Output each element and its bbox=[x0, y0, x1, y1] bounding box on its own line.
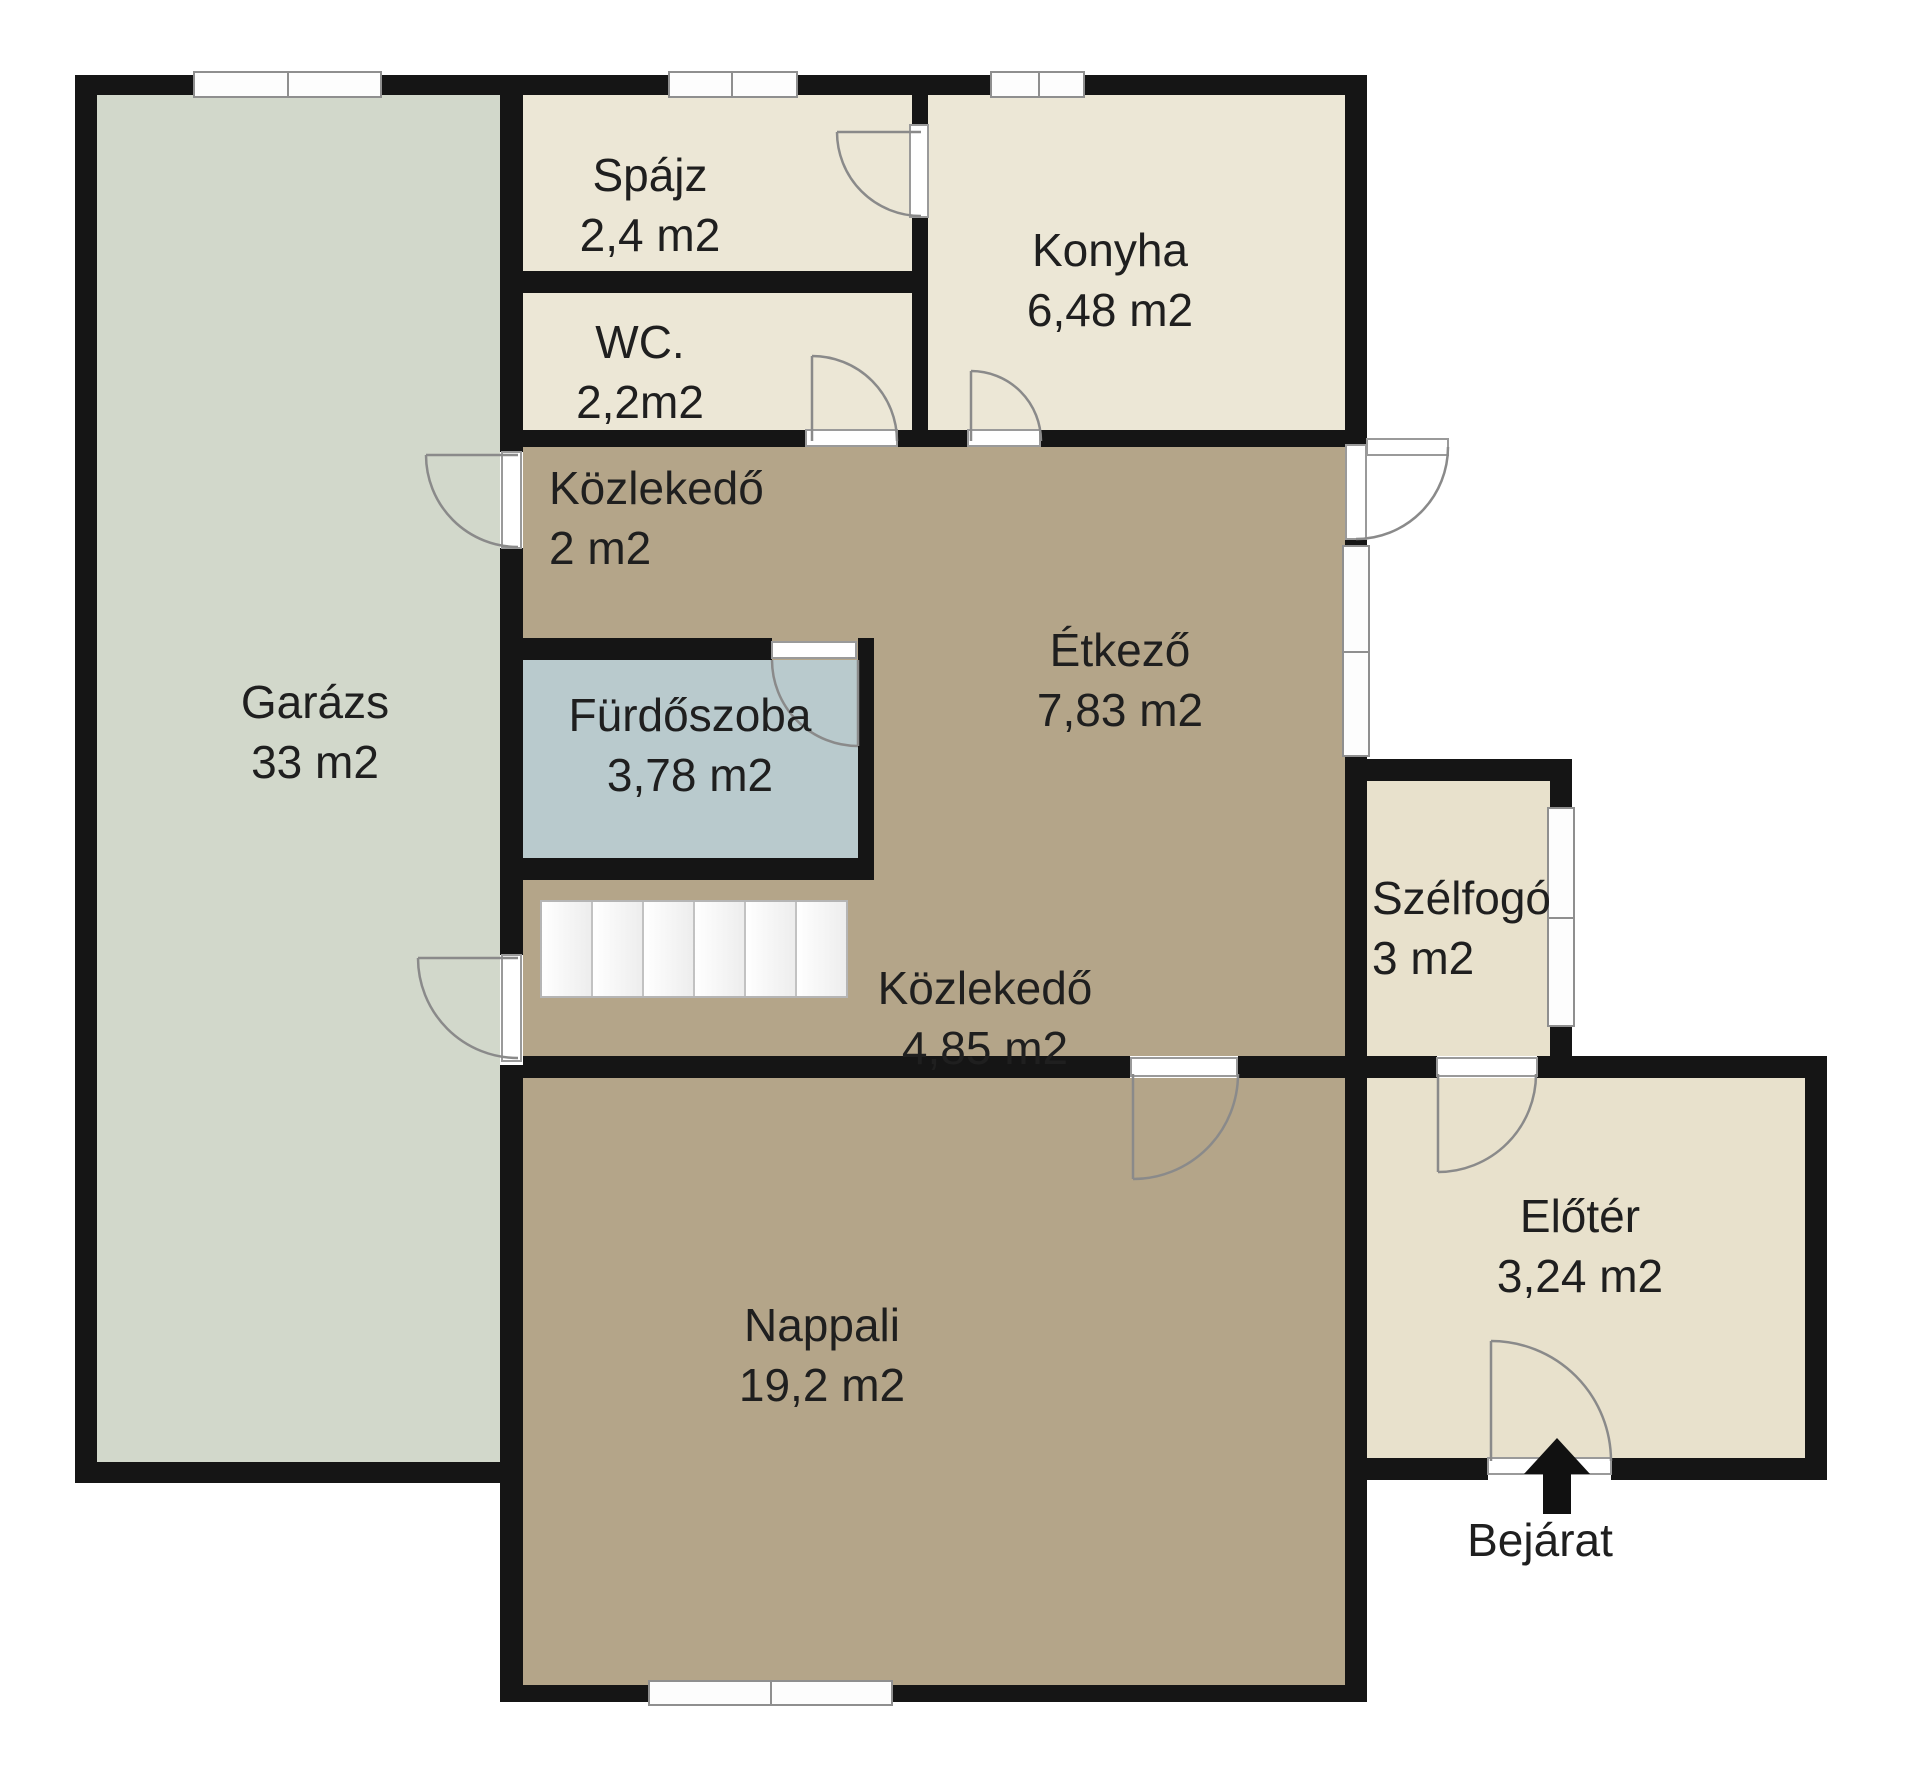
room-name: Nappali bbox=[622, 1295, 1022, 1355]
room-name: Konyha bbox=[910, 220, 1310, 280]
room-name: Spájz bbox=[500, 145, 800, 205]
room-area: 4,85 m2 bbox=[785, 1018, 1185, 1078]
room-label-nappali: Nappali 19,2 m2 bbox=[622, 1295, 1022, 1415]
room-name: WC. bbox=[490, 312, 790, 372]
entrance-text: Bejárat bbox=[1390, 1510, 1690, 1570]
room-label-garazs: Garázs 33 m2 bbox=[115, 672, 515, 792]
door-konyha-exterior bbox=[1346, 439, 1448, 539]
entrance-arrow-icon bbox=[1524, 1438, 1590, 1474]
floor-plan: Garázs 33 m2 Spájz 2,4 m2 WC. 2,2m2 Kony… bbox=[0, 0, 1920, 1775]
room-area: 2 m2 bbox=[549, 518, 949, 578]
room-area: 3,78 m2 bbox=[490, 745, 890, 805]
door-garage-lower bbox=[418, 955, 521, 1061]
room-name: Közlekedő bbox=[549, 458, 949, 518]
door-konyha bbox=[968, 371, 1041, 446]
room-label-furdoszoba: Fürdőszoba 3,78 m2 bbox=[490, 685, 890, 805]
door-garage-upper bbox=[426, 452, 521, 548]
room-label-szelfogo: Szélfogó 3 m2 bbox=[1372, 868, 1672, 988]
room-label-spajz: Spájz 2,4 m2 bbox=[500, 145, 800, 265]
room-name: Fürdőszoba bbox=[490, 685, 890, 745]
room-area: 2,4 m2 bbox=[500, 205, 800, 265]
room-name: Étkező bbox=[920, 620, 1320, 680]
door-wc bbox=[806, 356, 897, 446]
room-area: 19,2 m2 bbox=[622, 1355, 1022, 1415]
room-name: Előtér bbox=[1380, 1186, 1780, 1246]
door-szelfogo-eloter bbox=[1437, 1058, 1537, 1172]
room-label-kozlekedo-upper: Közlekedő 2 m2 bbox=[549, 458, 949, 578]
room-area: 3,24 m2 bbox=[1380, 1246, 1780, 1306]
room-area: 6,48 m2 bbox=[910, 280, 1310, 340]
room-label-eloter: Előtér 3,24 m2 bbox=[1380, 1186, 1780, 1306]
door-spajz bbox=[837, 125, 928, 217]
room-area: 3 m2 bbox=[1372, 928, 1672, 988]
room-label-etkezo: Étkező 7,83 m2 bbox=[920, 620, 1320, 740]
room-area: 2,2m2 bbox=[490, 372, 790, 432]
room-area: 7,83 m2 bbox=[920, 680, 1320, 740]
room-name: Közlekedő bbox=[785, 958, 1185, 1018]
room-area: 33 m2 bbox=[115, 732, 515, 792]
entrance-arrow-shaft bbox=[1543, 1472, 1571, 1514]
room-label-kozlekedo-lower: Közlekedő 4,85 m2 bbox=[785, 958, 1185, 1078]
entrance-label: Bejárat bbox=[1390, 1510, 1690, 1570]
room-label-konyha: Konyha 6,48 m2 bbox=[910, 220, 1310, 340]
room-name: Szélfogó bbox=[1372, 868, 1672, 928]
room-label-wc: WC. 2,2m2 bbox=[490, 312, 790, 432]
room-name: Garázs bbox=[115, 672, 515, 732]
